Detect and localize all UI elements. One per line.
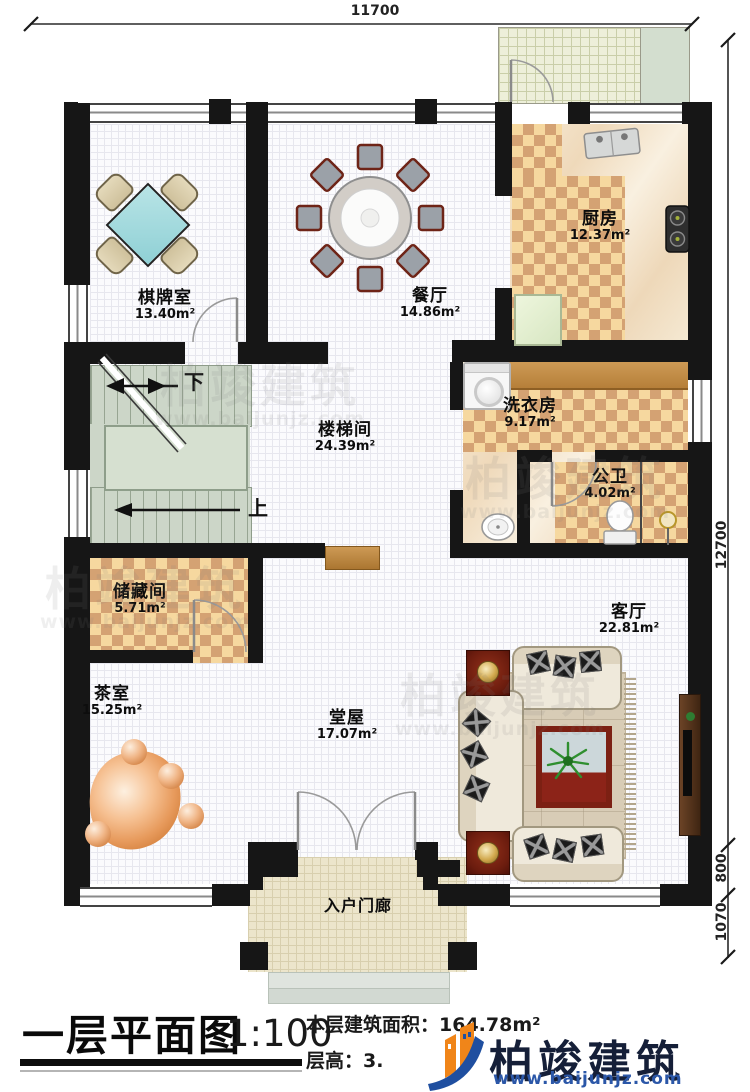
- wall: [688, 102, 712, 380]
- floor-height-label: 层高：: [306, 1050, 363, 1072]
- room-name: 入户门廊: [288, 897, 428, 915]
- terrace-side-floor: [640, 27, 690, 104]
- sofa-pillow: [553, 655, 577, 679]
- sofa-pillow: [581, 834, 605, 858]
- kitchen-cabinet: [514, 294, 562, 346]
- window: [68, 470, 88, 537]
- laundry-counter: [505, 362, 688, 390]
- brand-logo-icon: [424, 1022, 490, 1092]
- wall: [517, 450, 552, 462]
- room-label-porch: 入户门廊: [288, 897, 428, 915]
- tea-decor-ball: [158, 763, 184, 789]
- room-area: 17.07m²: [292, 728, 402, 742]
- wall: [450, 543, 688, 558]
- room-area: 9.17m²: [475, 416, 585, 430]
- wall: [246, 102, 268, 350]
- room-name: 储藏间: [85, 583, 195, 602]
- floor-height-line: 层高：3.: [306, 1046, 383, 1073]
- room-area: 24.39m²: [290, 440, 400, 454]
- sofa-pillow: [579, 650, 602, 673]
- window: [437, 103, 495, 123]
- window: [231, 103, 246, 123]
- table-lamp-icon: [477, 661, 499, 683]
- floor-height-value: 3.: [363, 1050, 383, 1072]
- tea-decor-ball: [85, 821, 111, 847]
- wall: [248, 558, 263, 663]
- porch-pillar: [417, 860, 460, 877]
- room-label-bath: 公卫 4.02m²: [555, 468, 665, 501]
- floor-area-label: 本层建筑面积：: [306, 1014, 439, 1036]
- room-label-hall: 堂屋 17.07m²: [292, 709, 402, 742]
- room-name: 楼梯间: [290, 421, 400, 440]
- title-underline: [20, 1059, 302, 1066]
- tea-decor-ball: [178, 803, 204, 829]
- room-label-kitchen: 厨房 12.37m²: [545, 210, 655, 243]
- wall: [568, 102, 590, 124]
- porch-step-2: [268, 988, 450, 1004]
- cabinet-plant-icon: [686, 712, 695, 721]
- room-area: 15.25m²: [57, 704, 167, 718]
- wall: [595, 450, 688, 462]
- room-area: 4.02m²: [555, 487, 665, 501]
- room-area: 5.71m²: [85, 602, 195, 616]
- stair-up-label: 上: [248, 492, 268, 521]
- stair-flight-lower: [90, 487, 252, 545]
- wall: [238, 342, 328, 364]
- window: [268, 103, 415, 123]
- room-name: 厨房: [545, 210, 655, 229]
- brand-url: www.baijunjz.com: [493, 1069, 683, 1089]
- window: [510, 887, 660, 907]
- porch-pillar: [448, 942, 477, 970]
- wall: [90, 543, 325, 558]
- sofa-pillow: [552, 838, 577, 863]
- terrace-floor: [498, 27, 642, 104]
- room-name: 洗衣房: [475, 397, 585, 416]
- room-label-storage: 储藏间 5.71m²: [85, 583, 195, 616]
- wall: [438, 884, 510, 906]
- coffee-table: [536, 726, 612, 808]
- sofa-pillow: [526, 650, 551, 675]
- wall: [64, 103, 90, 285]
- porch-pillar: [240, 942, 268, 970]
- wall-pier: [209, 99, 231, 124]
- room-name: 茶室: [57, 685, 167, 704]
- table-lamp-icon: [477, 842, 499, 864]
- room-label-dining: 餐厅 14.86m²: [375, 287, 485, 320]
- window: [692, 380, 712, 442]
- room-area: 13.40m²: [110, 308, 220, 322]
- dimension-top: 11700: [330, 3, 420, 19]
- room-area: 22.81m²: [574, 622, 684, 636]
- stair-flight-upper: [90, 365, 252, 427]
- tea-decor-ball: [121, 739, 147, 765]
- room-label-tea: 茶室 15.25m²: [57, 685, 167, 718]
- floor-plan-canvas: 棋牌室 13.40m² 餐厅 14.86m² 厨房 12.37m² 洗衣房 9.…: [0, 0, 750, 1092]
- wall: [495, 288, 512, 344]
- side-table: [466, 831, 510, 875]
- room-label-living: 客厅 22.81m²: [574, 603, 684, 636]
- wall: [452, 340, 712, 362]
- wall: [64, 884, 80, 906]
- sofa-left: [458, 690, 524, 842]
- wall-pier: [415, 99, 437, 124]
- wall: [90, 650, 193, 663]
- room-label-stairhall: 楼梯间 24.39m²: [290, 421, 400, 454]
- window: [68, 285, 88, 342]
- porch-pillar: [260, 860, 298, 877]
- room-name: 棋牌室: [110, 289, 220, 308]
- wall: [450, 362, 463, 410]
- tv-screen: [683, 730, 692, 796]
- wall: [212, 884, 250, 906]
- washer-control-panel: [465, 364, 509, 373]
- living-rug-fringe: [624, 678, 636, 850]
- room-name: 餐厅: [375, 287, 485, 306]
- wall: [495, 124, 512, 196]
- room-name: 客厅: [574, 603, 684, 622]
- dimension-right-bottom: 1070: [714, 887, 730, 957]
- title-underline-thin: [20, 1070, 302, 1072]
- wall: [64, 342, 185, 364]
- dimension-right-main: 12700: [714, 510, 730, 580]
- page-title: 一层平面图: [22, 1002, 242, 1063]
- window: [590, 103, 682, 123]
- hall-cabinet: [325, 546, 380, 570]
- stair-down-label: 下: [184, 366, 204, 395]
- room-area: 14.86m²: [375, 306, 485, 320]
- room-area: 12.37m²: [545, 229, 655, 243]
- room-label-chess: 棋牌室 13.40m²: [110, 289, 220, 322]
- room-label-laundry: 洗衣房 9.17m²: [475, 397, 585, 430]
- wall: [450, 490, 463, 543]
- side-table: [466, 650, 510, 696]
- window: [80, 887, 212, 907]
- wall: [660, 884, 712, 906]
- wall: [517, 450, 530, 543]
- window: [78, 103, 209, 123]
- room-name: 公卫: [555, 468, 665, 487]
- wall: [495, 102, 512, 124]
- room-name: 堂屋: [292, 709, 402, 728]
- stair-landing: [104, 425, 248, 491]
